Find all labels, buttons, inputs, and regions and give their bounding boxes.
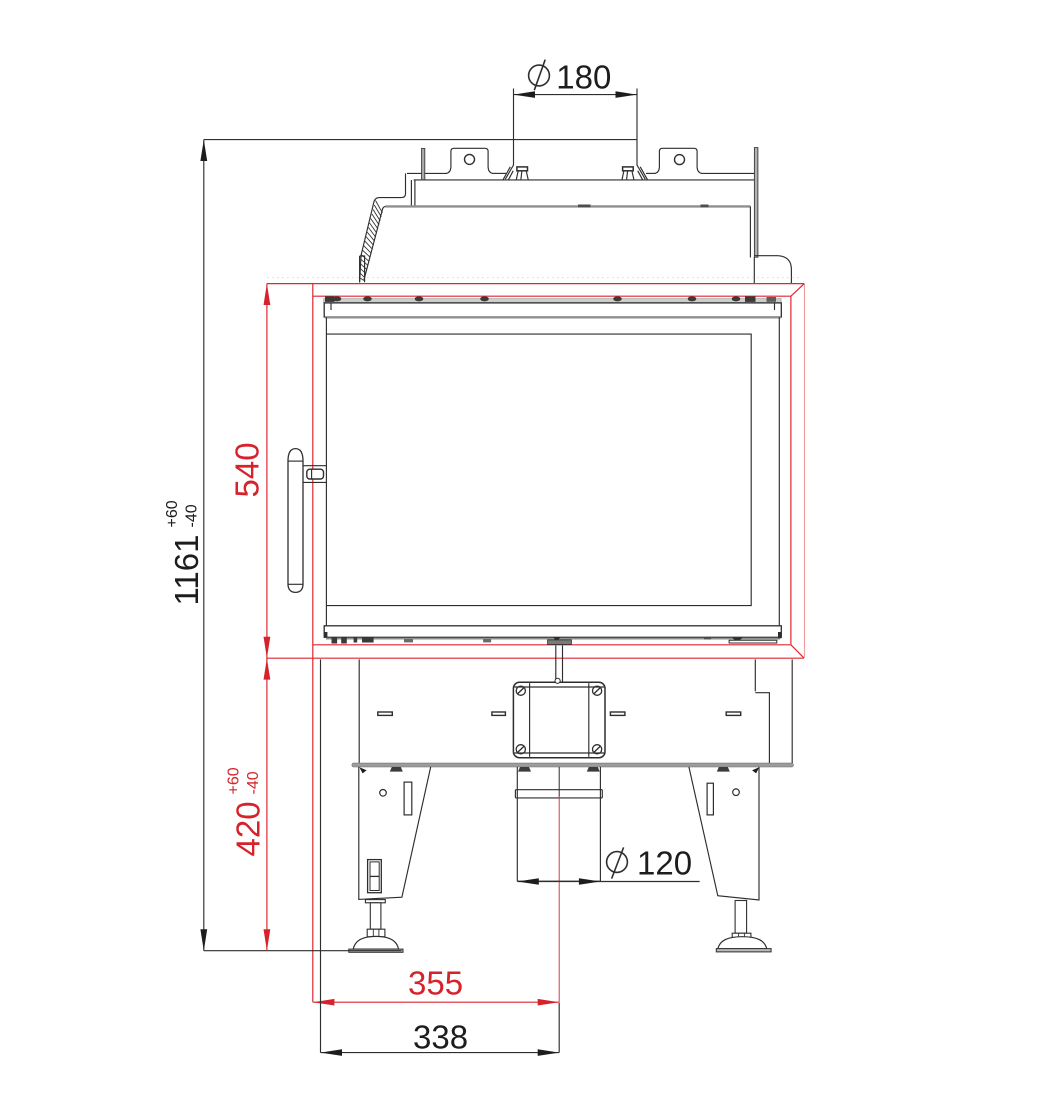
svg-text:420+60-40: 420+60-40 bbox=[226, 767, 267, 856]
svg-text:180: 180 bbox=[556, 58, 611, 95]
svg-text:338: 338 bbox=[413, 1018, 468, 1055]
svg-text:540: 540 bbox=[229, 442, 266, 497]
svg-text:120: 120 bbox=[637, 845, 692, 882]
svg-text:1161+60-40: 1161+60-40 bbox=[164, 500, 205, 605]
svg-text:355: 355 bbox=[408, 964, 463, 1001]
